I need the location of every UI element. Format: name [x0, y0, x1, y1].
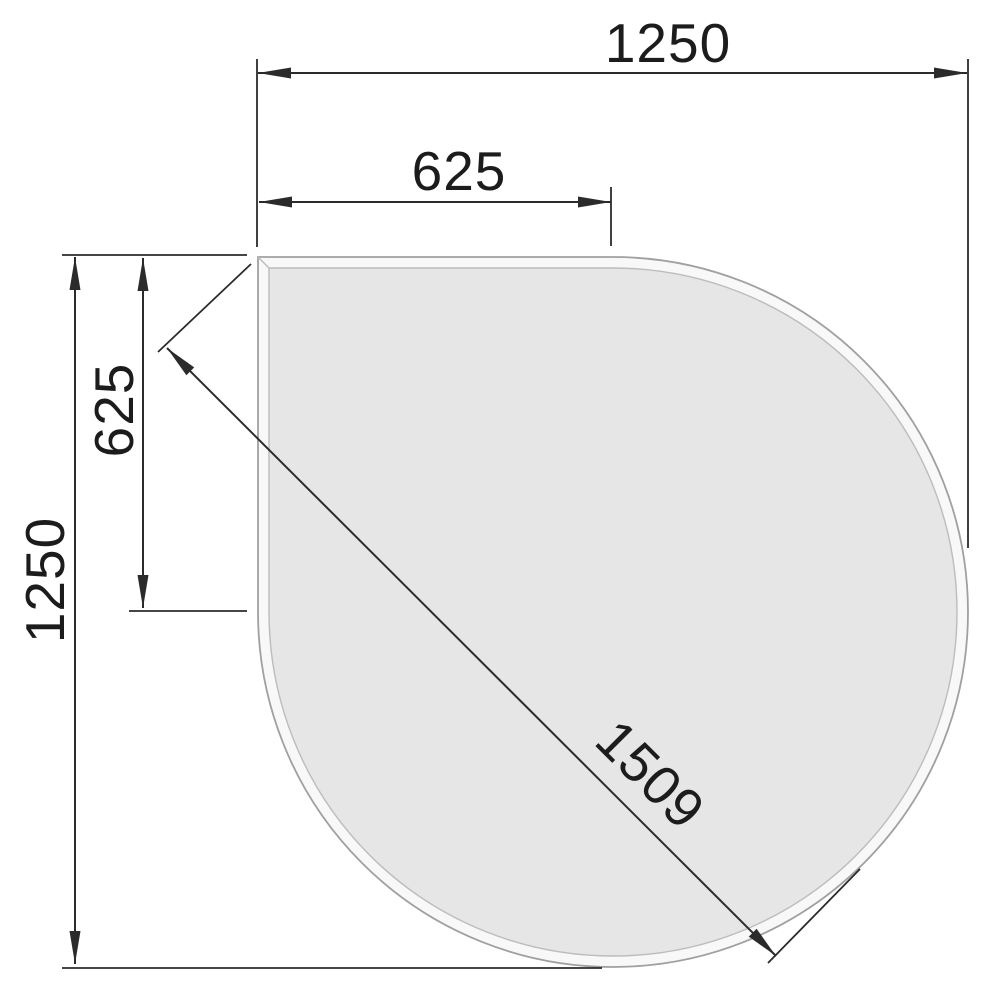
teardrop-plate-drawing: 1250 625 1250 625 1509: [0, 0, 1000, 1000]
technical-drawing-canvas: 1250 625 1250 625 1509: [0, 0, 1000, 1000]
plate-surface: [269, 268, 957, 956]
dim-top-half-width-label: 625: [412, 140, 507, 202]
dim-top-width-label: 1250: [605, 12, 731, 74]
dim-left-half-height-label: 625: [83, 363, 145, 458]
dim-left-height-label: 1250: [14, 517, 76, 643]
